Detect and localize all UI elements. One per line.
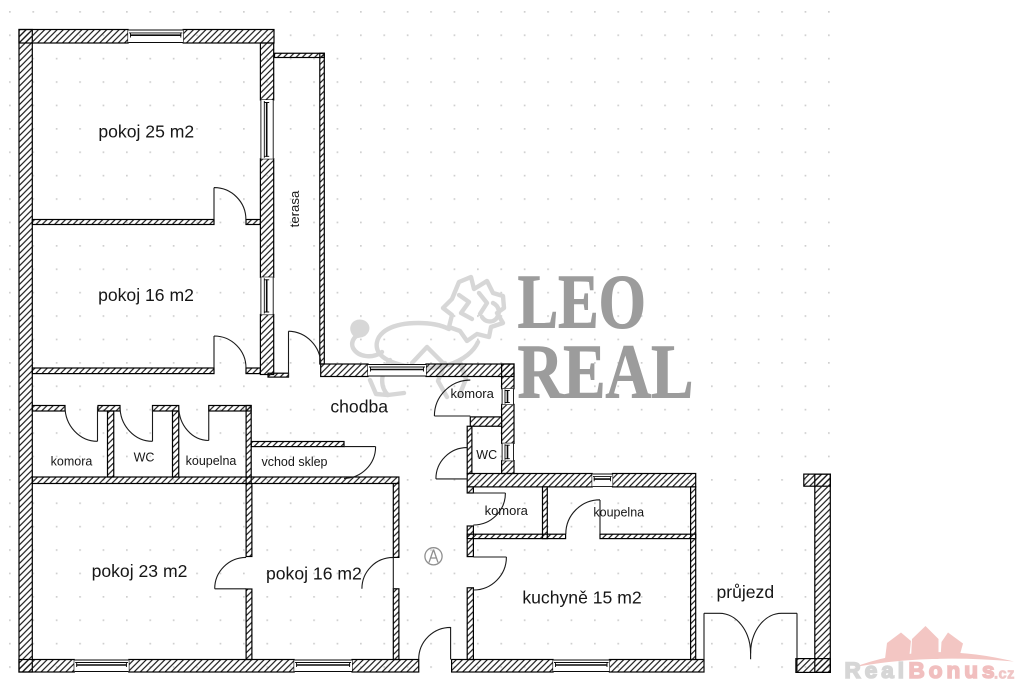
svg-text:komora: komora	[485, 503, 529, 518]
svg-text:terasa: terasa	[287, 190, 302, 227]
svg-text:Bonus: Bonus	[909, 658, 999, 683]
svg-text:pokoj 23 m2: pokoj 23 m2	[92, 561, 188, 581]
svg-text:komora: komora	[451, 386, 495, 401]
svg-text:WC: WC	[476, 448, 497, 462]
svg-text:REAL: REAL	[518, 329, 694, 415]
svg-text:koupelna: koupelna	[593, 506, 644, 520]
svg-text:WC: WC	[134, 451, 155, 465]
svg-text:komora: komora	[51, 454, 93, 468]
svg-text:koupelna: koupelna	[186, 454, 237, 468]
svg-text:pokoj 16 m2: pokoj 16 m2	[98, 285, 194, 305]
svg-text:průjezd: průjezd	[716, 582, 774, 602]
svg-text:.cz: .cz	[994, 667, 1015, 683]
svg-text:kuchyně 15 m2: kuchyně 15 m2	[522, 587, 641, 607]
svg-text:Real: Real	[845, 658, 909, 683]
svg-text:vchod sklep: vchod sklep	[261, 455, 327, 469]
svg-text:chodba: chodba	[330, 397, 388, 417]
svg-text:pokoj 25 m2: pokoj 25 m2	[98, 121, 194, 141]
svg-text:pokoj 16 m2: pokoj 16 m2	[266, 563, 362, 583]
